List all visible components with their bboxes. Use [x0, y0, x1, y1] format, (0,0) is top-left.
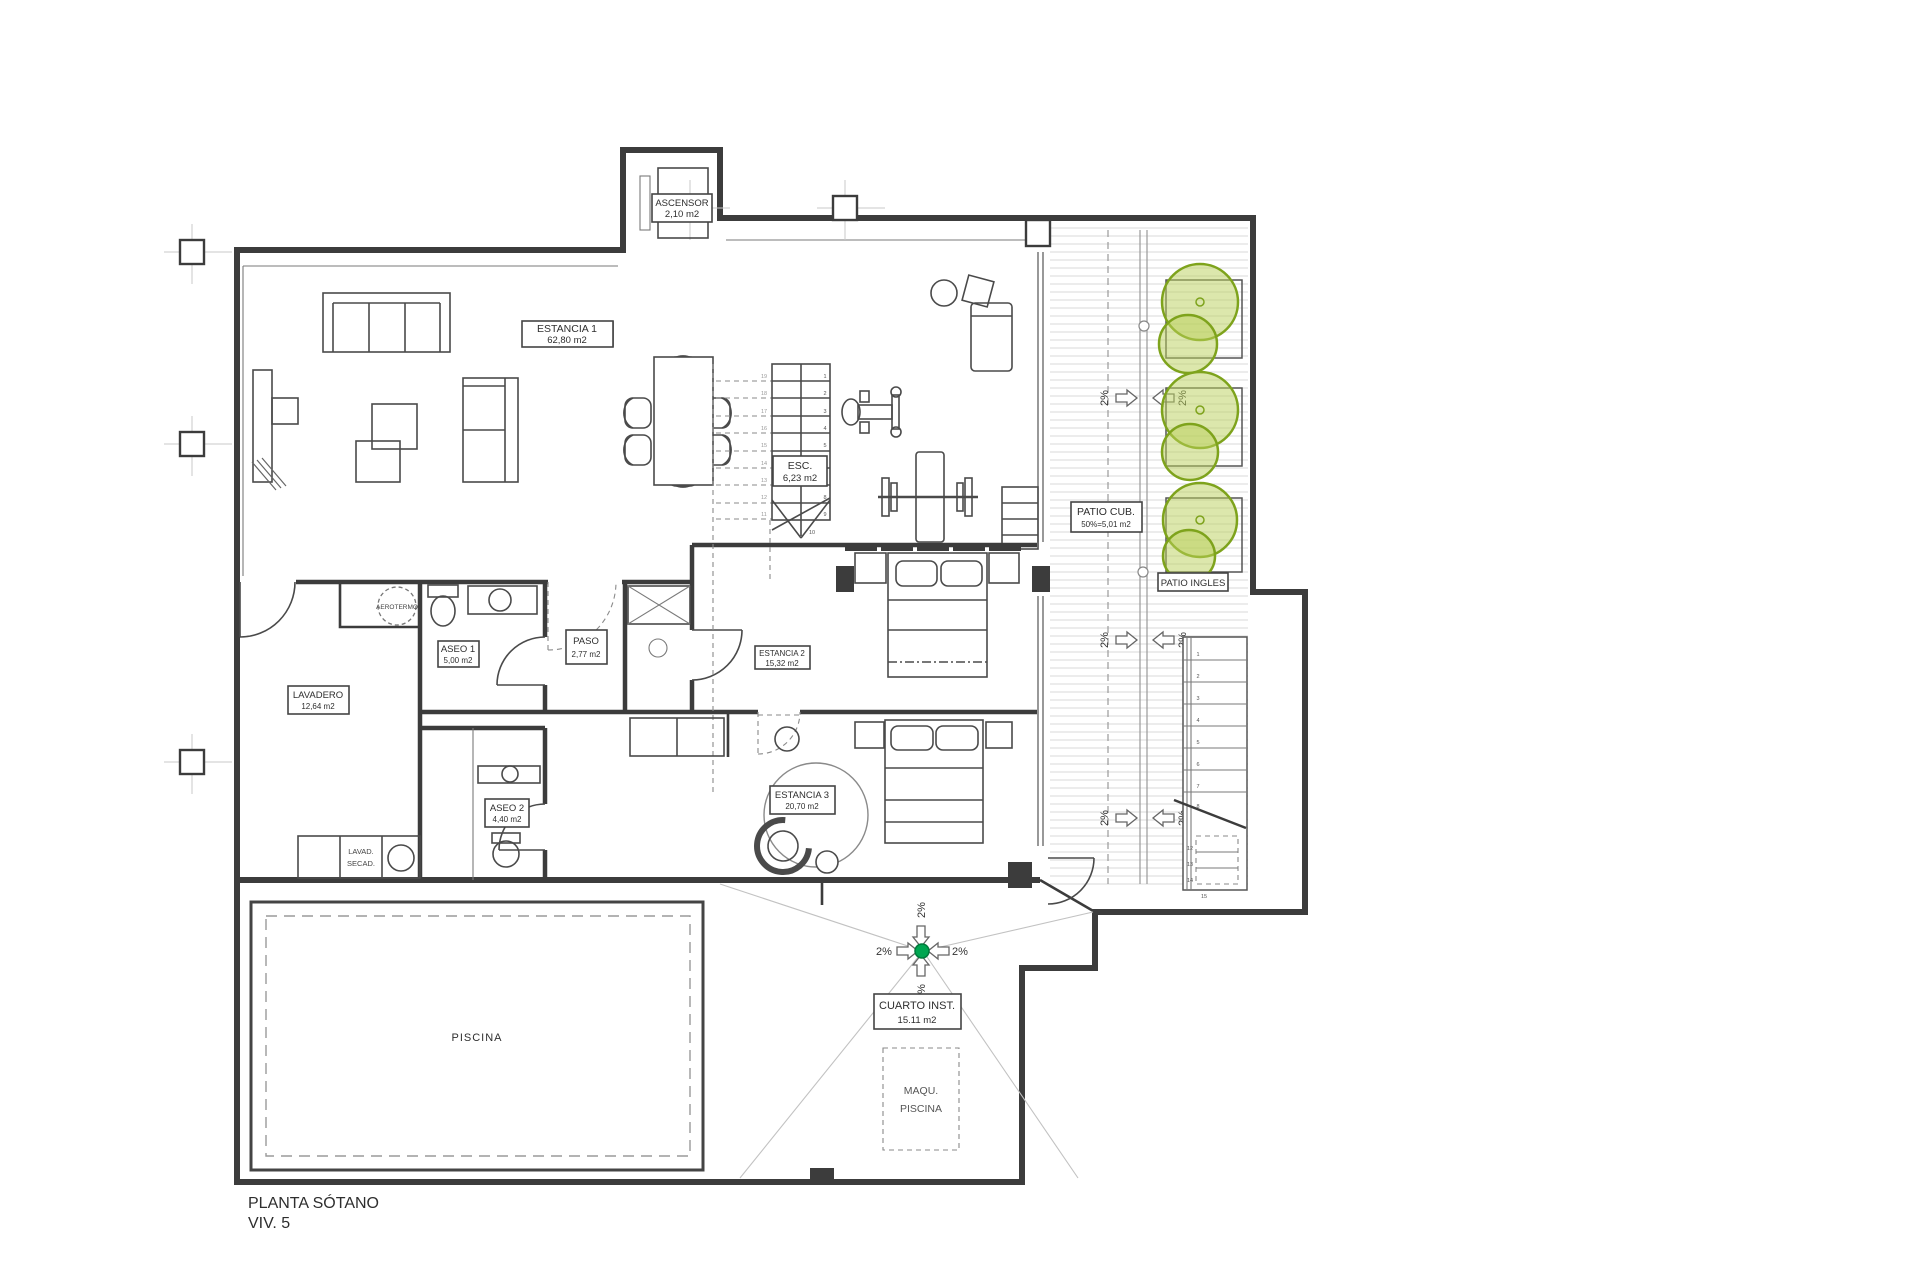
sofa [323, 293, 450, 352]
column [1008, 862, 1032, 888]
slope-label: 2% [916, 902, 928, 918]
sink-icon [502, 766, 518, 782]
pool-label: PISCINA [451, 1032, 502, 1044]
label-paso: PASO 2,77 m2 [566, 630, 607, 664]
column [1032, 566, 1050, 592]
elevator-counterweight [640, 176, 650, 230]
stair-number: 2 [823, 391, 826, 397]
chaise-lounge [971, 303, 1012, 371]
label-estancia1: ESTANCIA 1 62,80 m2 [522, 321, 613, 347]
stair-number: 3 [823, 409, 826, 415]
room-area: 15,32 m2 [765, 659, 799, 668]
stair-number: 14 [1187, 878, 1193, 884]
pillow [941, 561, 982, 586]
stair-number: 1 [1196, 652, 1199, 658]
dining-table [654, 357, 713, 485]
cushion [962, 275, 994, 307]
stair-number: 14 [761, 461, 767, 467]
room-area: 15.11 m2 [898, 1015, 937, 1026]
nightstand [986, 722, 1012, 748]
column [1026, 220, 1050, 246]
cuarto-inst: 2% 2% 2% 2% MAQU. PISCINA [720, 884, 1093, 1178]
coffee-table [356, 404, 417, 482]
tree-icon [1162, 424, 1218, 480]
tv-unit [252, 370, 298, 490]
room-area: 5,00 m2 [444, 656, 473, 665]
label-estancia2: ESTANCIA 2 15,32 m2 [755, 646, 810, 669]
label-patio-ingles: PATIO INGLES [1158, 573, 1228, 591]
stair-number: 8 [1196, 804, 1199, 810]
slope-label: 2% [1099, 810, 1111, 826]
stair-number: 15 [761, 443, 767, 449]
laundry-appliances: LAVAD. SECAD. [298, 836, 420, 878]
room-area: 20,70 m2 [785, 802, 819, 811]
stair-number: 8 [823, 495, 826, 501]
room-area: 50%=5,01 m2 [1081, 520, 1131, 529]
stair-number: 3 [1196, 696, 1199, 702]
door-lavadero [240, 582, 295, 637]
drain-inlet-icon [1138, 567, 1148, 577]
dumbbell-rack [1002, 487, 1038, 549]
room-name: ESTANCIA 2 [759, 649, 805, 658]
vanity [478, 766, 540, 783]
room-area: 12,64 m2 [301, 702, 335, 711]
stair-number: 19 [761, 374, 767, 380]
double-bed [888, 553, 987, 677]
pool-machinery: MAQU. PISCINA [883, 1048, 959, 1150]
wardrobe-doors [845, 543, 1021, 551]
stair-number: 5 [823, 443, 826, 449]
stair-number: 11 [761, 512, 767, 518]
floor-plan-drawing: 2% 2% 2% 2% 2% 2% [0, 0, 1920, 1280]
patio-stairs: 1 2 3 4 5 6 7 8 12 13 14 15 [1174, 637, 1247, 900]
stair-number: 5 [1196, 740, 1199, 746]
column [810, 1168, 834, 1182]
room-name: PASO [573, 636, 599, 647]
drain-point-icon [915, 944, 929, 958]
dryer-label: SECAD. [347, 859, 375, 868]
stair-number: 17 [761, 409, 767, 415]
room-name: ASEO 2 [490, 803, 524, 814]
label-esc: ESC. 6,23 m2 [773, 456, 827, 486]
stair-number: 2 [1196, 674, 1199, 680]
stair-number: 7 [1196, 784, 1199, 790]
double-bed [885, 720, 983, 843]
label-aseo1: ASEO 1 5,00 m2 [438, 641, 479, 667]
slope-label: 2% [952, 946, 968, 958]
drawing-title: PLANTA SÓTANO VIV. 5 [248, 1193, 379, 1232]
column [180, 240, 204, 264]
room-area: 6,23 m2 [783, 473, 817, 484]
rug [764, 763, 868, 867]
room-name: PATIO CUB. [1077, 506, 1135, 518]
aerotermo-label: AEROTERMO [376, 604, 418, 611]
drain-inlet-icon [1139, 321, 1149, 331]
stair-number: 9 [823, 512, 826, 518]
patio-trees [1159, 264, 1242, 582]
sink-icon [489, 589, 511, 611]
living-room-furniture [252, 275, 1038, 549]
label-ascensor: ASCENSOR 2,10 m2 [652, 194, 712, 222]
ceiling-lamp-icon [649, 639, 667, 657]
pool: PISCINA [251, 902, 703, 1170]
weight-bench [878, 452, 978, 542]
slope-label: 2% [1099, 632, 1111, 648]
washer-label: LAVAD. [348, 847, 374, 856]
table-lamp-icon [775, 727, 799, 751]
column [180, 432, 204, 456]
maqu-label-line1: MAQU. [904, 1085, 938, 1097]
nightstand [989, 553, 1019, 583]
room-name: ESC. [788, 460, 813, 472]
slope-label: 2% [876, 946, 892, 958]
stool [816, 851, 838, 873]
stair-number: 1 [823, 374, 826, 380]
door-estancia2 [692, 630, 742, 680]
label-lavadero: LAVADERO 12,64 m2 [288, 686, 349, 714]
main-stairs: 19 18 17 16 15 14 13 12 11 1 2 3 4 5 6 7… [713, 364, 830, 792]
toilet-icon [493, 841, 519, 867]
stair-number: 12 [761, 495, 767, 501]
toilet-icon [431, 596, 455, 626]
room-name: ESTANCIA 3 [775, 790, 829, 801]
maqu-label-line2: PISCINA [900, 1103, 942, 1115]
aerotermo-unit: AEROTERMO [376, 587, 418, 625]
label-aseo2: ASEO 2 4,40 m2 [485, 799, 529, 827]
stair-number: 15 [1201, 894, 1207, 900]
tree-icon [1159, 315, 1217, 373]
room-name: CUARTO INST. [879, 1000, 955, 1012]
title-line1: PLANTA SÓTANO [248, 1193, 379, 1212]
pillow [896, 561, 937, 586]
nightstand [855, 553, 886, 583]
floor-plan-page: 2% 2% 2% 2% 2% 2% [0, 0, 1920, 1280]
door-aseo1 [497, 637, 545, 685]
slope-lines [720, 884, 1093, 1178]
estancia2-furniture [628, 543, 1021, 677]
stair-number: 13 [1187, 862, 1193, 868]
label-estancia3: ESTANCIA 3 20,70 m2 [770, 786, 835, 814]
stair-number: 12 [1187, 846, 1193, 852]
column [833, 196, 857, 220]
tub-chair [746, 814, 813, 882]
exercise-bike [842, 387, 901, 437]
slope-label: 2% [1099, 390, 1111, 406]
stair-number: 4 [823, 426, 826, 432]
room-area: 2,10 m2 [665, 209, 699, 220]
laundry-basket-icon [388, 845, 414, 871]
stair-number: 16 [761, 426, 767, 432]
room-area: 2,77 m2 [572, 650, 601, 659]
dining-set [624, 356, 731, 487]
stair-number: 6 [1196, 762, 1199, 768]
room-name: ASEO 1 [441, 644, 475, 655]
stair-number: 18 [761, 391, 767, 397]
armchair [463, 378, 518, 482]
stair-number: 13 [761, 478, 767, 484]
column [180, 750, 204, 774]
stair-number: 10 [809, 530, 815, 536]
label-cuarto-inst: CUARTO INST. 15.11 m2 [874, 994, 961, 1029]
room-area: 62,80 m2 [547, 335, 587, 346]
label-patio-cub: PATIO CUB. 50%=5,01 m2 [1071, 502, 1142, 532]
nightstand [855, 722, 884, 748]
aseo1-fixtures [428, 585, 537, 626]
room-name: ESTANCIA 1 [537, 323, 597, 335]
room-name: ASCENSOR [655, 198, 708, 209]
room-area: 4,40 m2 [493, 815, 522, 824]
tv-icon [252, 458, 286, 490]
title-line2: VIV. 5 [248, 1215, 290, 1232]
room-name: PATIO INGLES [1161, 578, 1226, 589]
vanity [468, 586, 537, 614]
room-name: LAVADERO [293, 690, 343, 701]
column [836, 566, 854, 592]
stair-number: 4 [1196, 718, 1199, 724]
side-table [931, 280, 957, 306]
lounge-corner [931, 275, 1012, 371]
